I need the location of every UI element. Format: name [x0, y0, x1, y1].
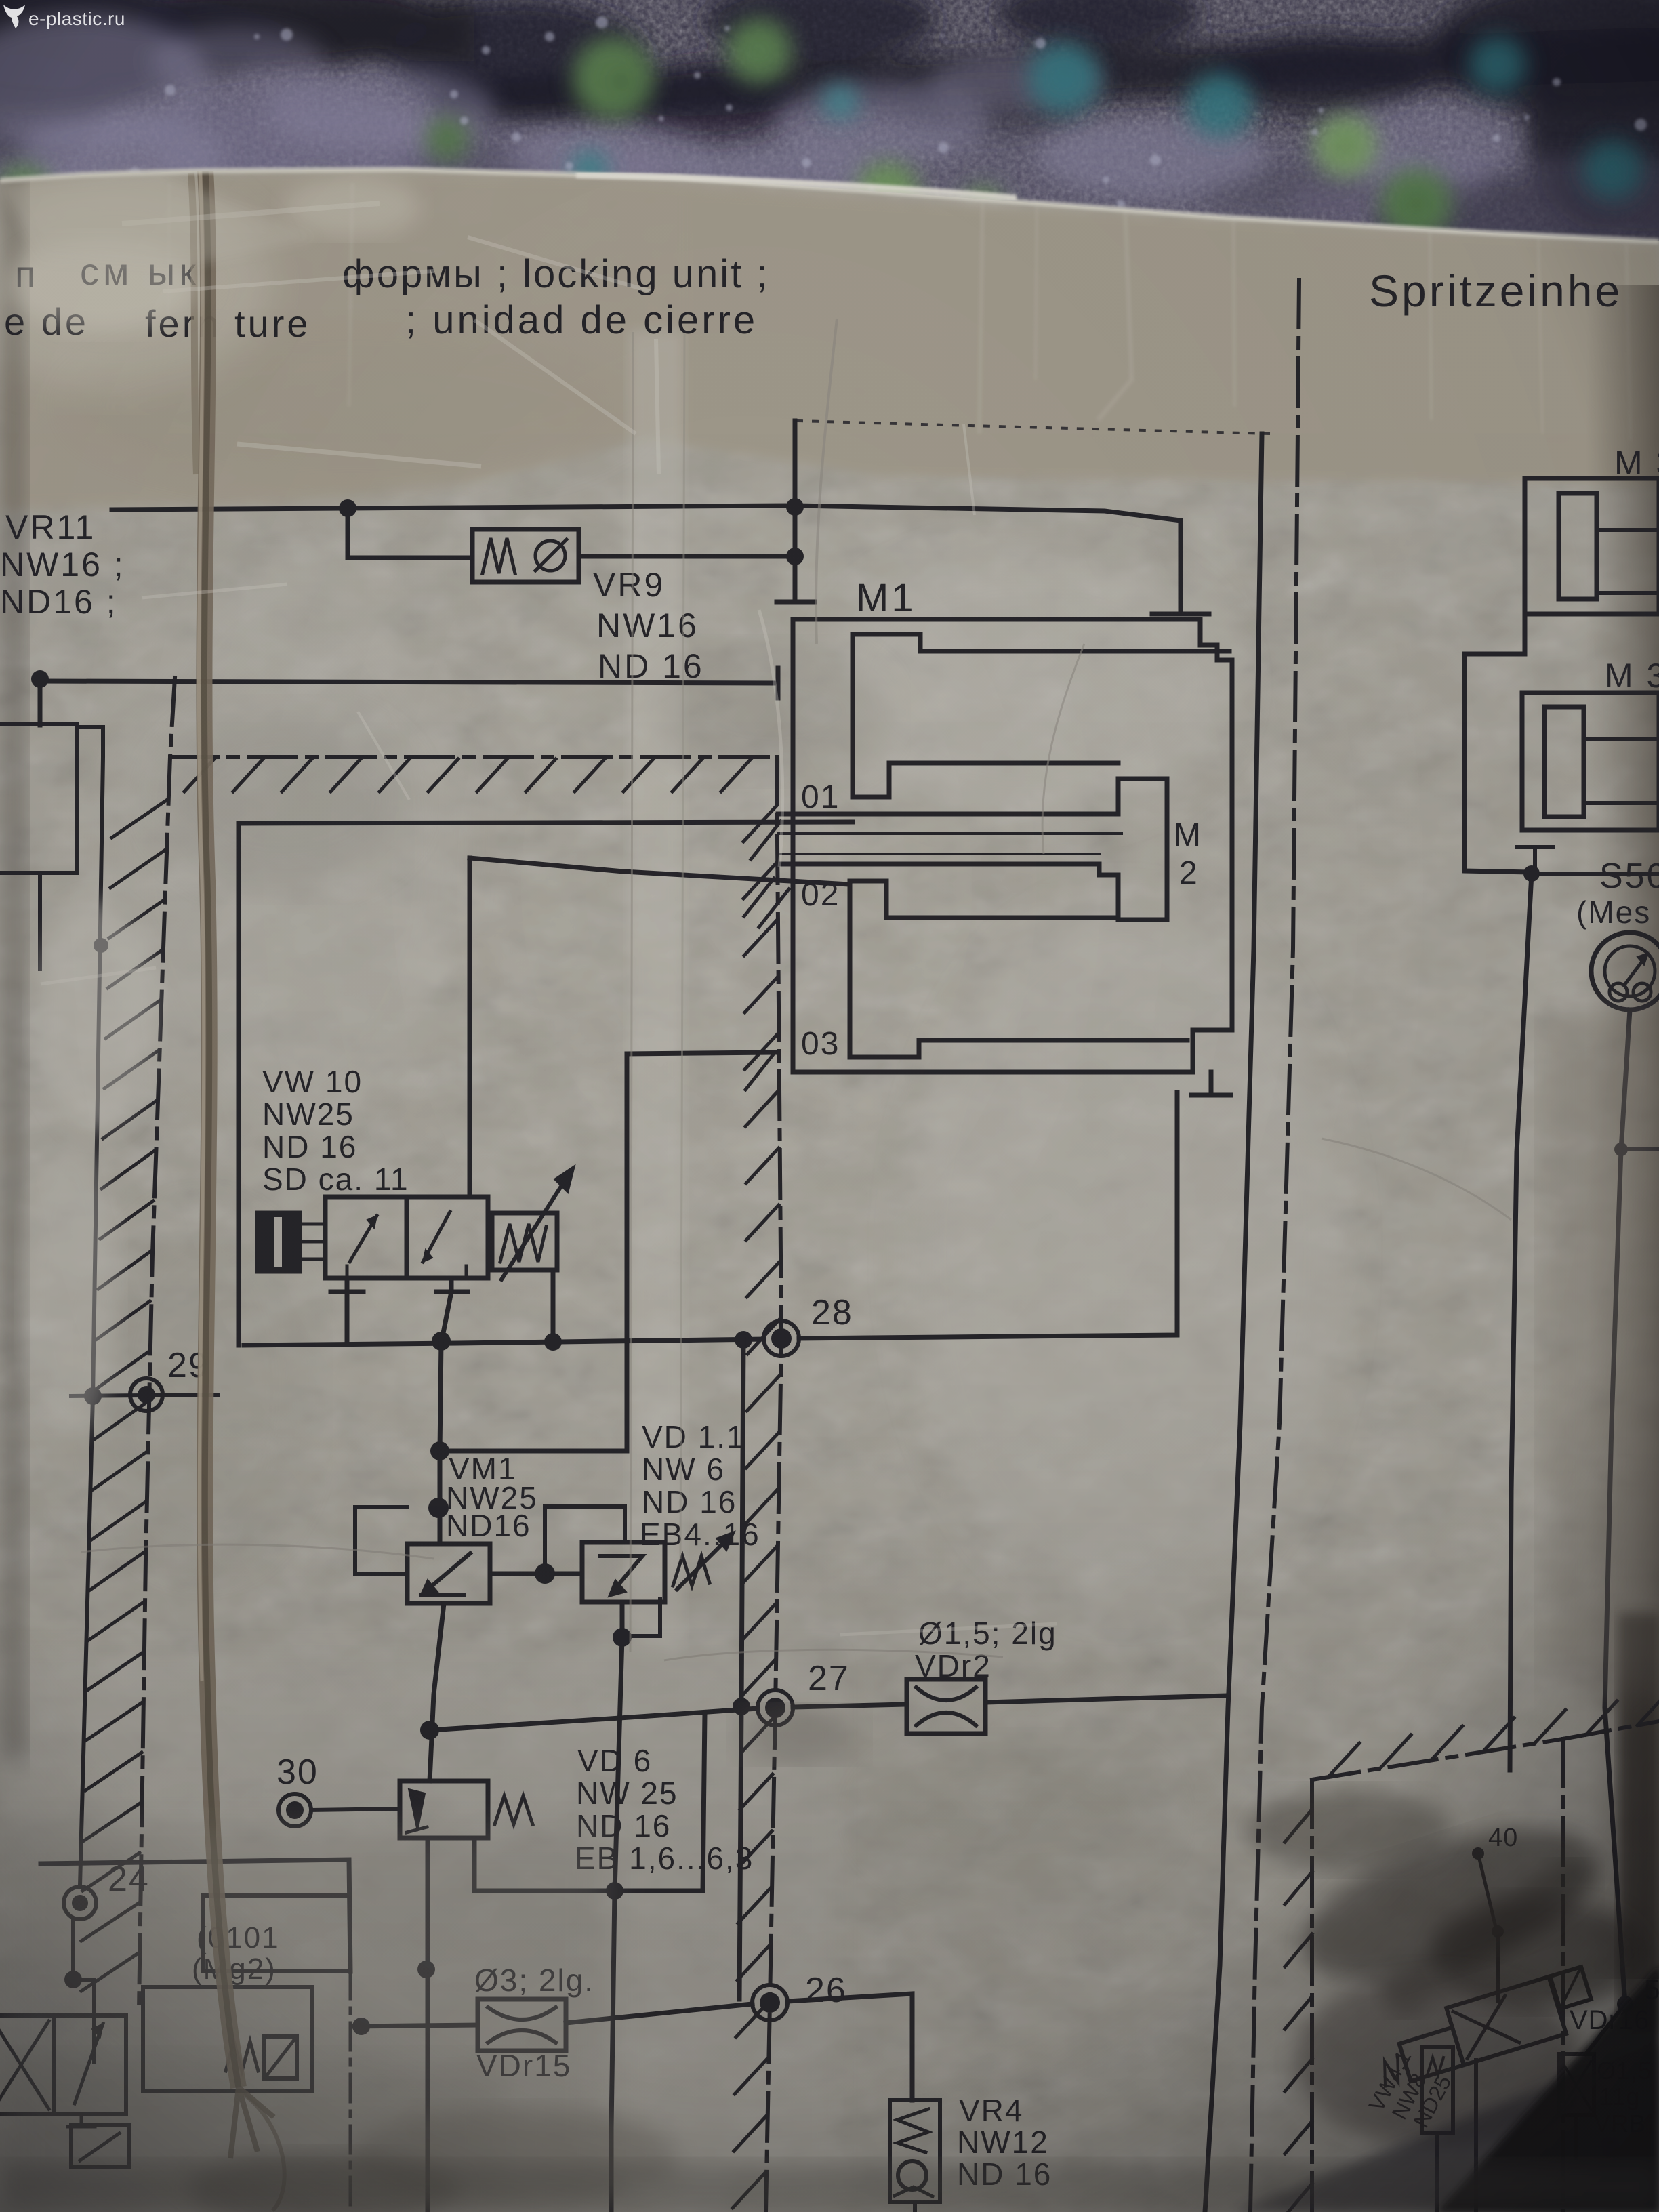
svg-text:e-plastic.ru: e-plastic.ru	[28, 8, 125, 29]
